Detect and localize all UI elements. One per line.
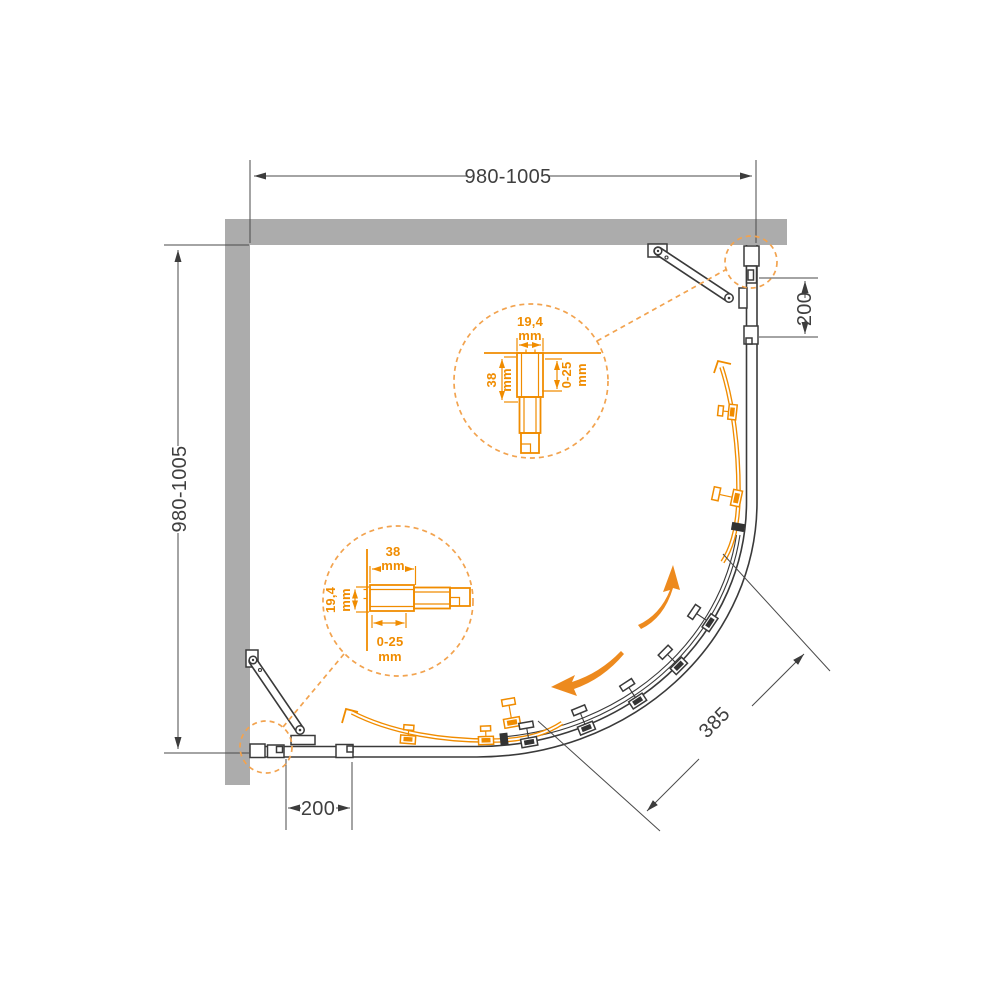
door-glass-arc bbox=[505, 535, 740, 741]
door-roller-orange bbox=[717, 403, 737, 420]
plan-drawing: 980-1005 980-1005 200 200 385 bbox=[0, 0, 990, 990]
roller bbox=[687, 604, 718, 632]
door-glass-arc bbox=[502, 535, 737, 737]
detail-bottom-width: 38 bbox=[386, 544, 401, 559]
profile-section-top bbox=[517, 350, 543, 454]
support-bar-bottom-left bbox=[246, 650, 304, 734]
support-pad bbox=[291, 736, 315, 745]
wall-left bbox=[225, 245, 250, 785]
shower-enclosure-plan: 980-1005 980-1005 200 200 385 bbox=[0, 0, 990, 990]
slide-direction-arrows bbox=[551, 565, 680, 696]
dim-right-offset: 200 bbox=[759, 278, 818, 337]
wall-profile-top-right bbox=[739, 246, 759, 344]
profile-section-bottom bbox=[364, 585, 471, 611]
detail-top-width-unit: mm bbox=[518, 328, 542, 343]
detail-callout-top: 19,4 mm 38 mm 0-25 mm bbox=[454, 236, 777, 458]
dim-radius-label: 385 bbox=[695, 703, 735, 743]
dim-right-label: 200 bbox=[794, 292, 816, 326]
dim-door-radius: 385 bbox=[538, 554, 830, 831]
wall-top bbox=[225, 219, 787, 245]
detail-bottom-adjust-unit: mm bbox=[378, 649, 402, 664]
detail-top-adjust: 0-25 bbox=[559, 362, 574, 389]
detail-top-depth: 38 bbox=[484, 373, 499, 388]
dim-top-label: 980-1005 bbox=[465, 166, 552, 188]
door-roller-orange bbox=[478, 726, 494, 745]
detail-bottom-adjust: 0-25 bbox=[377, 634, 404, 649]
door-roller-orange bbox=[500, 697, 521, 728]
leader-line bbox=[597, 269, 727, 341]
detail-bottom-width-unit: mm bbox=[381, 558, 405, 573]
detail-bottom-depth: 19,4 bbox=[323, 586, 338, 613]
support-pad bbox=[739, 288, 747, 308]
roller bbox=[619, 678, 647, 709]
support-bar-top-right bbox=[648, 244, 733, 302]
door-end-block bbox=[499, 733, 508, 746]
dim-bottom-label: 200 bbox=[301, 798, 335, 820]
roller bbox=[657, 644, 687, 674]
dim-left-label: 980-1005 bbox=[169, 446, 191, 533]
arrow-up-icon bbox=[638, 565, 680, 629]
detail-top-width: 19,4 bbox=[517, 314, 544, 329]
detail-top-depth-unit: mm bbox=[499, 368, 514, 392]
dim-bottom-offset: 200 bbox=[286, 759, 352, 830]
detail-bottom-depth-unit: mm bbox=[338, 588, 353, 612]
sliding-door-upper bbox=[711, 361, 742, 562]
detail-top-adjust-unit: mm bbox=[574, 363, 589, 387]
arrow-down-icon bbox=[551, 651, 624, 696]
